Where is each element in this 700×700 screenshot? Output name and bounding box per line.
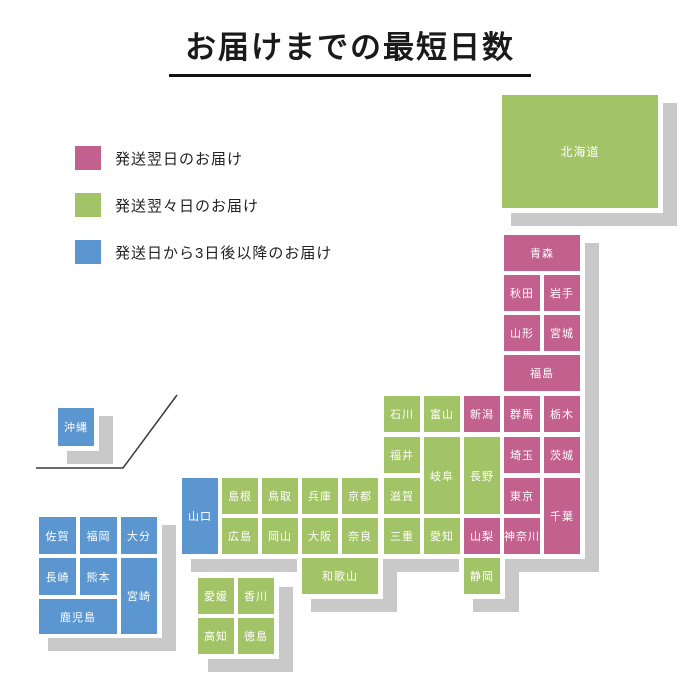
prefecture-box: 京都 — [342, 478, 378, 514]
prefecture-box: 石川 — [384, 396, 420, 432]
prefecture-box: 兵庫 — [302, 478, 338, 514]
prefecture-box: 山形 — [504, 315, 540, 351]
prefecture-box: 福島 — [504, 355, 580, 391]
prefecture-box: 滋賀 — [384, 478, 420, 514]
prefecture-box: 愛媛 — [198, 578, 234, 614]
prefecture-box: 福井 — [384, 437, 420, 473]
prefecture-box: 宮崎 — [121, 558, 157, 634]
prefecture-box: 愛知 — [424, 518, 460, 554]
delivery-days-infographic: お届けまでの最短日数 発送翌日のお届け 発送翌々日のお届け 発送日から3日後以降… — [0, 0, 700, 700]
prefecture-box: 沖縄 — [58, 408, 94, 446]
prefecture-box: 大分 — [121, 517, 157, 554]
prefecture-box: 千葉 — [544, 478, 580, 554]
prefecture-box: 岡山 — [262, 518, 298, 554]
prefecture-box: 長野 — [464, 437, 500, 514]
prefecture-box: 三重 — [384, 518, 420, 554]
prefecture-box: 福岡 — [80, 517, 117, 554]
prefecture-box: 青森 — [504, 235, 580, 271]
prefecture-box: 新潟 — [464, 396, 500, 432]
prefecture-box: 山口 — [182, 478, 218, 554]
prefecture-box: 鹿児島 — [39, 599, 117, 634]
prefecture-box: 静岡 — [464, 558, 500, 594]
prefecture-box: 熊本 — [80, 558, 117, 595]
prefecture-box: 山梨 — [464, 518, 500, 554]
japan-map: 北海道青森秋田岩手山形宮城福島石川富山新潟群馬栃木福井岐阜長野埼玉茨城山口島根鳥… — [0, 0, 700, 700]
prefecture-box: 北海道 — [502, 95, 658, 208]
prefecture-box: 徳島 — [238, 618, 274, 654]
prefecture-box: 神奈川 — [504, 518, 540, 554]
prefecture-box: 秋田 — [504, 275, 540, 311]
prefecture-box: 埼玉 — [504, 437, 540, 473]
prefecture-box: 東京 — [504, 478, 540, 514]
prefecture-box: 富山 — [424, 396, 460, 432]
prefecture-box: 長崎 — [39, 558, 76, 595]
prefecture-box: 栃木 — [544, 396, 580, 432]
prefecture-box: 奈良 — [342, 518, 378, 554]
prefecture-box: 広島 — [222, 518, 258, 554]
prefecture-box: 高知 — [198, 618, 234, 654]
prefecture-box: 香川 — [238, 578, 274, 614]
prefecture-box: 宮城 — [544, 315, 580, 351]
prefecture-box: 群馬 — [504, 396, 540, 432]
prefecture-box: 大阪 — [302, 518, 338, 554]
prefecture-box: 島根 — [222, 478, 258, 514]
prefecture-box: 岐阜 — [424, 437, 460, 514]
prefecture-box: 佐賀 — [39, 517, 76, 554]
prefecture-box: 和歌山 — [302, 558, 378, 594]
prefecture-box: 岩手 — [544, 275, 580, 311]
prefecture-box: 茨城 — [544, 437, 580, 473]
prefecture-box: 鳥取 — [262, 478, 298, 514]
